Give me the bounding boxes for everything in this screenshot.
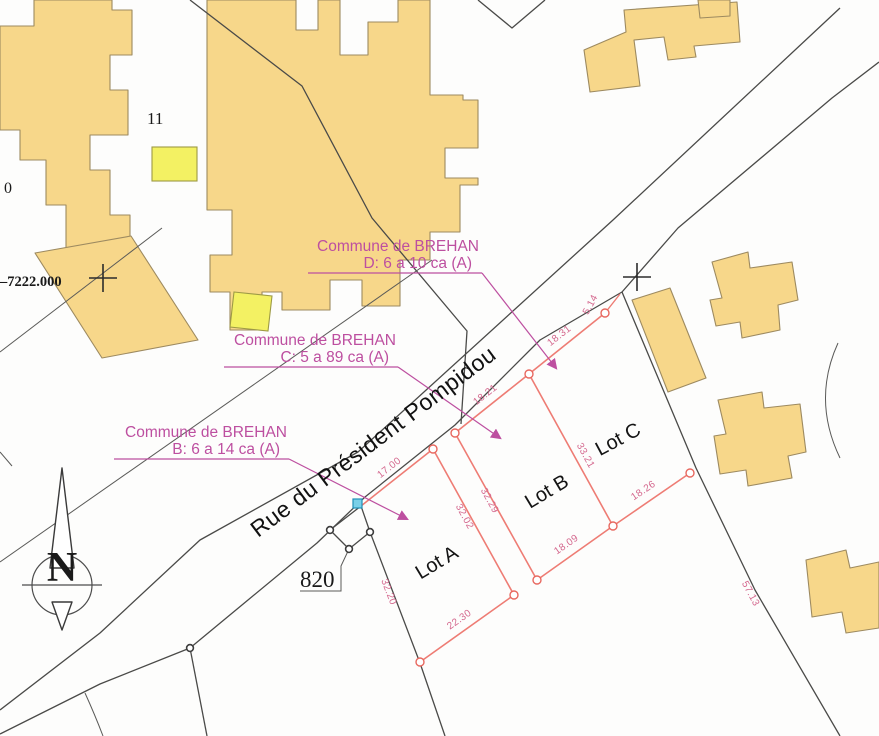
vertex-marker [510, 591, 518, 599]
building-topleft [0, 0, 132, 252]
parcel-820-outline [330, 506, 370, 549]
lot-labels: Lot A Lot B Lot C [412, 419, 645, 584]
annotation-c-line2: C: 5 a 89 ca (A) [280, 349, 389, 366]
dim-east-boundary: 57.13 [739, 579, 761, 608]
boundary-point [187, 645, 194, 652]
boundary-branch-south [190, 648, 207, 736]
vertex-marker [686, 469, 694, 477]
highlight-building-1 [152, 147, 197, 181]
cadastral-plan: N Commune de BREHAN D: 6 a 10 ca (A) Com… [0, 0, 879, 736]
curve-bottom-left [85, 693, 103, 736]
vertex-marker [451, 429, 459, 437]
building-beside-lot-c [632, 288, 706, 392]
dim-c-top: 18.31 [545, 323, 573, 348]
grid-coordinate-label: –7222.000 [0, 274, 62, 290]
dim-b-top: 18.21 [471, 382, 499, 407]
vertex-marker [416, 658, 424, 666]
lot-c-label: Lot C [592, 419, 645, 461]
lot-a-label: Lot A [412, 541, 463, 584]
annotation-d-line1: Commune de BREHAN [317, 238, 479, 255]
dim-a-right: 32.02 [453, 502, 476, 531]
compass-north-letter: N [47, 545, 77, 591]
boundary-point [367, 529, 374, 536]
vertex-marker [525, 370, 533, 378]
dim-b-left: 32.29 [478, 486, 501, 515]
lot-division-lines [361, 294, 690, 662]
building-central-cluster [207, 0, 478, 330]
compass-rose: N [22, 468, 102, 630]
blue-survey-marker [353, 499, 362, 508]
vertex-marker [429, 445, 437, 453]
parcel-11-label: 11 [147, 109, 163, 128]
survey-vertices [187, 309, 694, 666]
building-bottomright [806, 550, 879, 633]
edge-tick [0, 452, 12, 466]
building-east-1 [710, 252, 798, 338]
vertex-marker [601, 309, 609, 317]
building-east-2 [714, 392, 806, 486]
dim-a-left: 32.20 [378, 578, 398, 607]
annotation-b-line2: B: 6 a 14 ca (A) [172, 441, 280, 458]
building-topedge-small [698, 0, 730, 18]
annotation-b-line1: Commune de BREHAN [125, 424, 287, 441]
curve-east [825, 343, 840, 458]
dim-c-stub: 5.14 [581, 293, 601, 317]
dim-c-bottom: 18.26 [629, 479, 658, 503]
top-v-notch [478, 0, 545, 28]
vertex-marker [533, 576, 541, 584]
dimension-labels: 17.00 32.02 22.30 32.20 18.21 32.29 18.0… [375, 293, 761, 632]
building-rotated-left [35, 236, 198, 358]
compass-needle-south [52, 602, 72, 630]
boundary-point [346, 546, 353, 553]
dim-a-bottom: 22.30 [445, 608, 473, 633]
edge-fragment-label: 0 [4, 180, 12, 197]
dim-bc-divider: 33.21 [574, 441, 597, 470]
parcel-820-label: 820 [300, 567, 335, 592]
boundary-point [327, 527, 334, 534]
lot-c-top-edge [529, 313, 605, 374]
annotation-d-line2: D: 6 a 10 ca (A) [363, 255, 472, 272]
annotation-c-line1: Commune de BREHAN [234, 332, 396, 349]
dim-b-bottom: 18.09 [552, 533, 580, 558]
lot-b-label: Lot B [521, 470, 572, 513]
vertex-marker [609, 522, 617, 530]
highlight-building-2 [230, 292, 272, 331]
